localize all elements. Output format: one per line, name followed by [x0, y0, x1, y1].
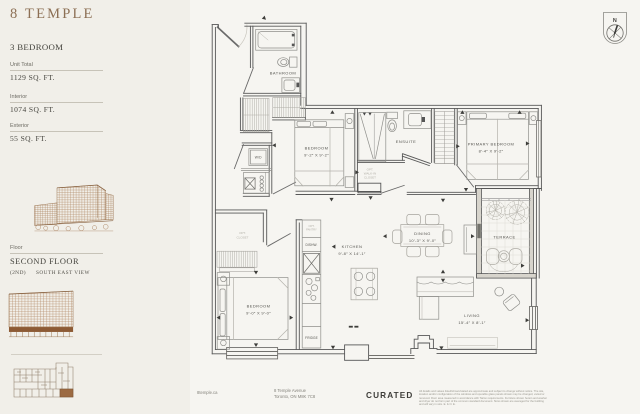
svg-text:FRIDGE: FRIDGE — [305, 336, 318, 340]
svg-text:8′-4″ X 9′-2″: 8′-4″ X 9′-2″ — [479, 149, 504, 154]
svg-text:9′-2″ X 9′-2″: 9′-2″ X 9′-2″ — [304, 153, 329, 158]
svg-text:DISHW.: DISHW. — [306, 243, 318, 247]
svg-text:LIVING: LIVING — [464, 313, 480, 318]
svg-text:W/D: W/D — [255, 156, 262, 160]
svg-text:OPT.: OPT. — [239, 231, 246, 235]
svg-text:9′-0″ X 9′-0″: 9′-0″ X 9′-0″ — [246, 311, 271, 316]
svg-text:BEDROOM: BEDROOM — [305, 146, 329, 151]
svg-text:TERRACE: TERRACE — [493, 235, 515, 240]
svg-text:15′-4″ X 8′-1″: 15′-4″ X 8′-1″ — [458, 320, 485, 325]
svg-text:DINING: DINING — [414, 231, 431, 236]
svg-text:10′-3″ X 9′-0″: 10′-3″ X 9′-0″ — [409, 238, 436, 243]
svg-text:PRIMARY BEDROOM: PRIMARY BEDROOM — [468, 142, 515, 147]
svg-text:ENSUITE: ENSUITE — [396, 139, 417, 144]
svg-text:N: N — [613, 18, 617, 24]
svg-text:CLOSET: CLOSET — [236, 236, 248, 240]
svg-text:PANTRY: PANTRY — [306, 228, 317, 232]
svg-text:CLOSET: CLOSET — [364, 176, 376, 180]
svg-text:9′-8″ X 14′-1″: 9′-8″ X 14′-1″ — [338, 251, 365, 256]
svg-text:BEDROOM: BEDROOM — [247, 304, 271, 309]
svg-text:KITCHEN: KITCHEN — [342, 244, 363, 249]
svg-text:OPT.: OPT. — [309, 224, 315, 228]
svg-text:BATHROOM: BATHROOM — [270, 71, 296, 76]
